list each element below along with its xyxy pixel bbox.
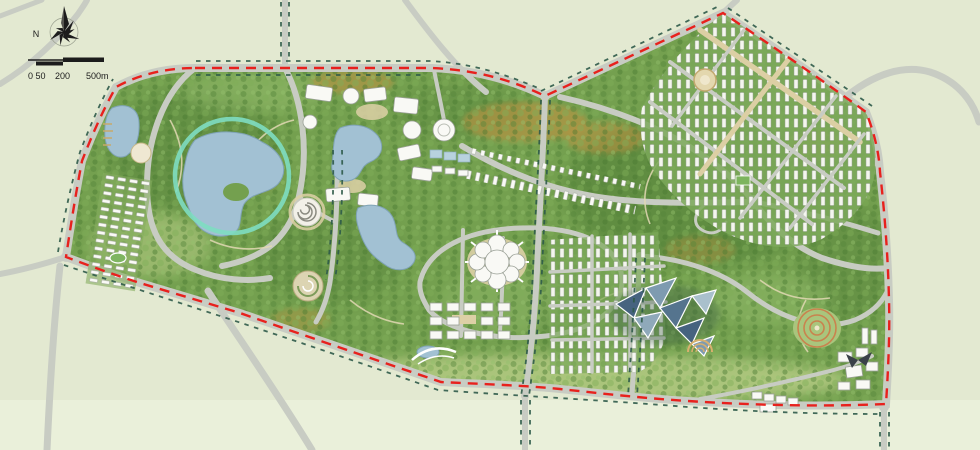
master-plan-map: N 0 50 200 500m: [0, 0, 980, 450]
terraced-circle-garden: [793, 308, 841, 348]
lake-peninsula: [223, 183, 249, 201]
swirl-garden: [293, 271, 323, 301]
compass-north-label: N: [33, 29, 40, 39]
sports-pitch: [736, 176, 750, 185]
scale-label-0-50: 0 50: [28, 71, 46, 81]
spiral-garden: [290, 195, 324, 229]
dome-plaza: [131, 143, 151, 163]
round-pavilion: [433, 119, 455, 141]
site-plan-canvas: N 0 50 200 500m: [0, 0, 980, 450]
scale-label-500m: 500m: [86, 71, 109, 81]
scale-label-200: 200: [55, 71, 70, 81]
south-center-cluster: [430, 303, 510, 339]
stadium-oval: [110, 253, 126, 263]
